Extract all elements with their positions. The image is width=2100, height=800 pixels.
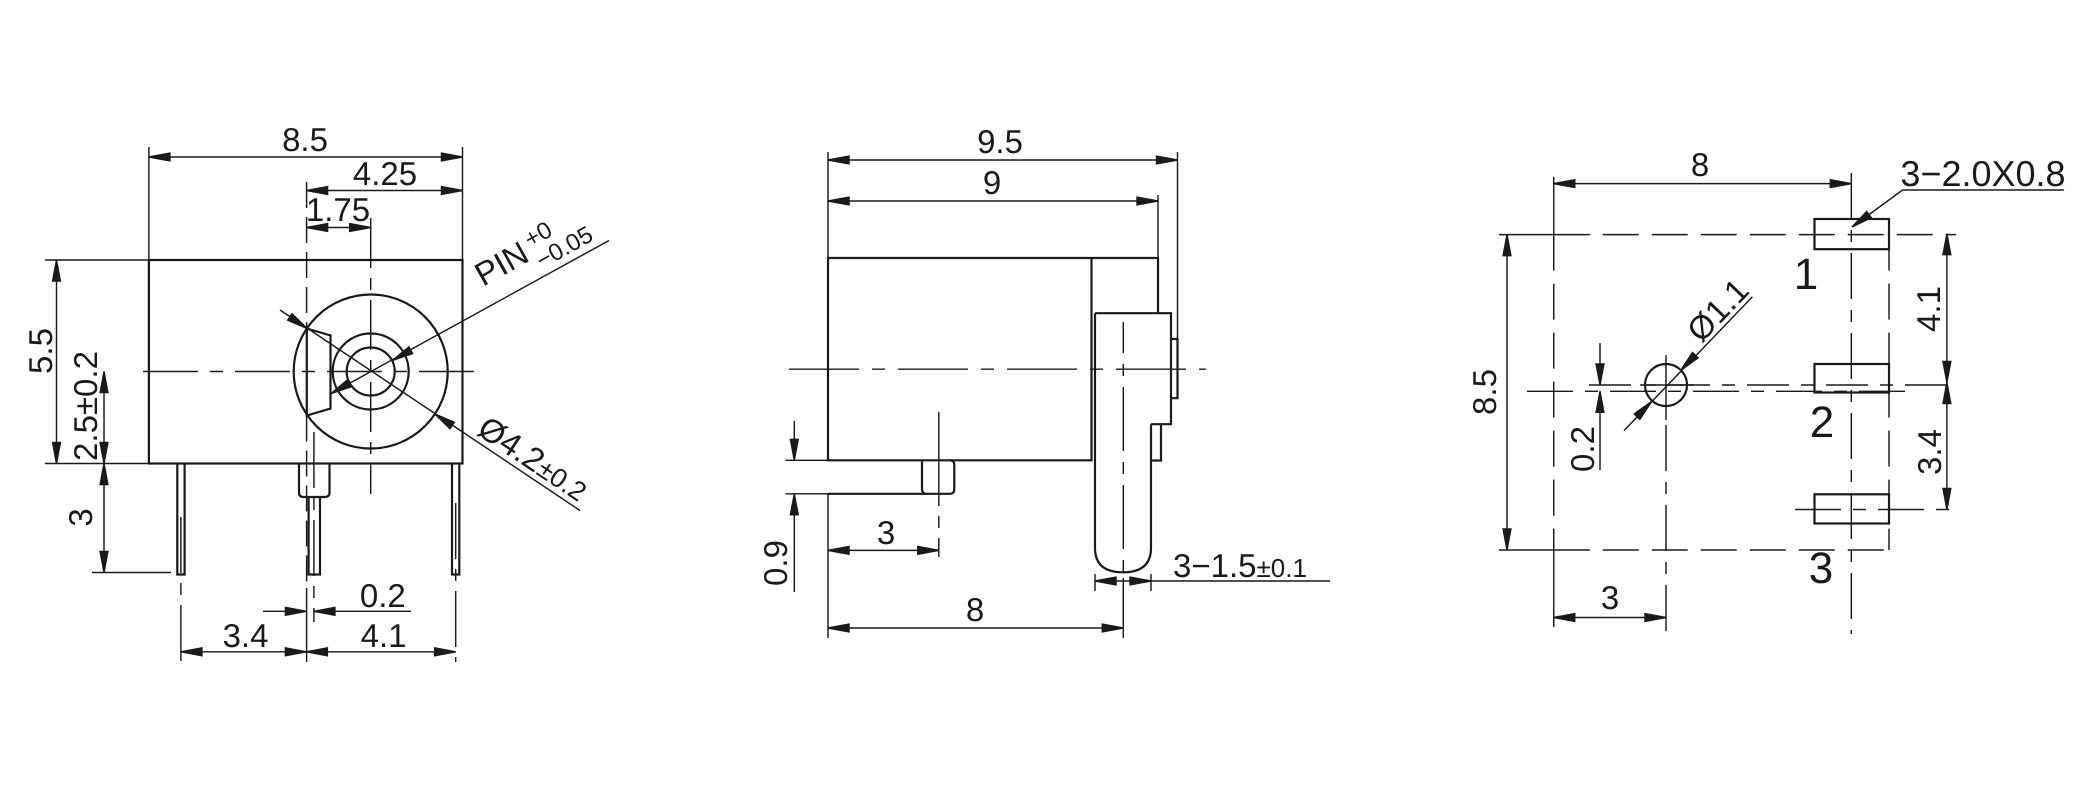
svg-text:1: 1 [1794,250,1818,299]
svg-text:9.5: 9.5 [977,123,1023,160]
svg-text:8: 8 [1691,146,1709,183]
svg-text:1.75: 1.75 [306,191,370,228]
svg-text:3: 3 [877,514,895,551]
svg-text:4.25: 4.25 [353,155,417,192]
svg-text:3−1.5±0.1: 3−1.5±0.1 [1173,547,1307,584]
svg-text:4.1: 4.1 [1910,286,1947,332]
svg-text:5.5: 5.5 [22,328,59,374]
svg-text:3: 3 [62,508,99,526]
svg-text:8: 8 [966,591,984,628]
svg-text:2: 2 [1810,398,1834,447]
svg-text:4.1: 4.1 [361,617,407,654]
svg-text:0.9: 0.9 [757,540,794,586]
svg-text:9: 9 [983,164,1001,201]
svg-text:3: 3 [1809,544,1833,593]
svg-text:3.4: 3.4 [223,617,269,654]
svg-text:3.4: 3.4 [1911,429,1948,475]
svg-text:3: 3 [1601,579,1619,616]
svg-text:8.5: 8.5 [282,121,328,158]
svg-text:3−2.0X0.8: 3−2.0X0.8 [1900,153,2065,194]
svg-text:8.5: 8.5 [1466,369,1503,415]
svg-text:2.5±0.2: 2.5±0.2 [67,351,104,461]
svg-text:0.2: 0.2 [1564,426,1601,472]
svg-text:0.2: 0.2 [360,577,406,614]
